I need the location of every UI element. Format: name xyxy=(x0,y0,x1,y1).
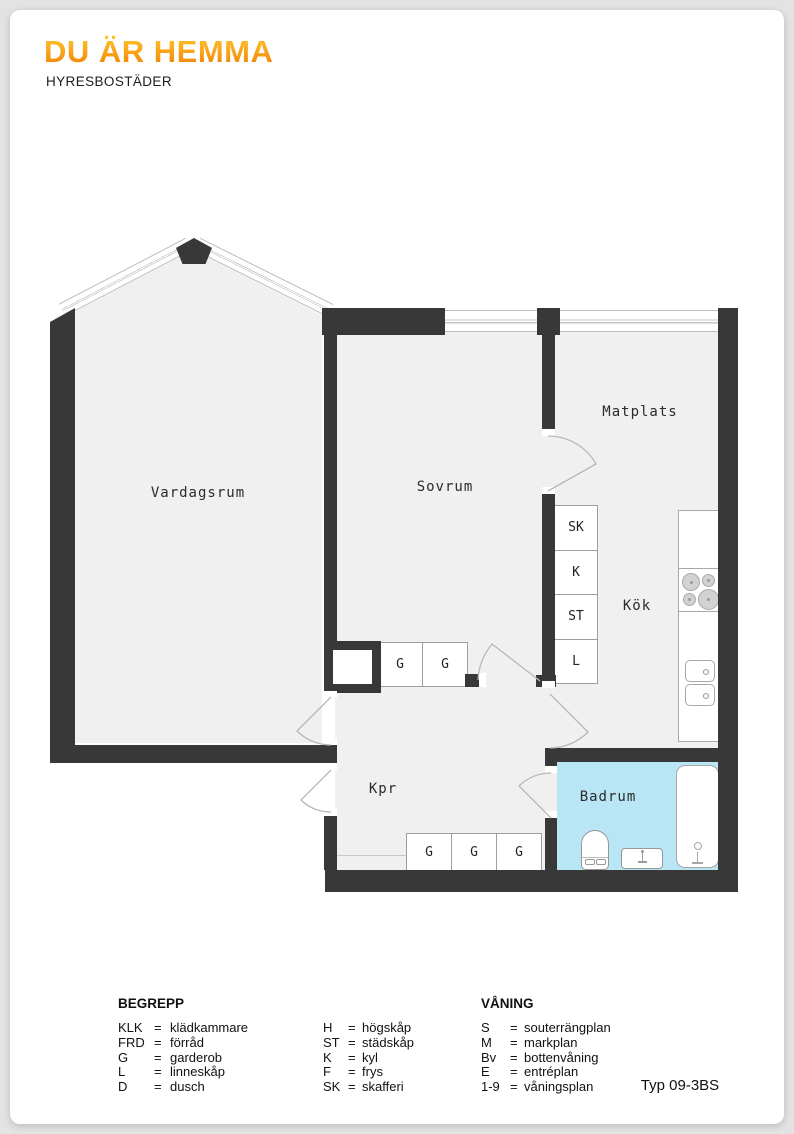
room-label-kpr: Kpr xyxy=(343,781,423,797)
shaft xyxy=(324,641,381,693)
legend-item: M=markplan xyxy=(481,1036,611,1051)
legend-item: Bv=bottenvåning xyxy=(481,1051,611,1066)
legend-vaning-title: VÅNING xyxy=(481,996,534,1011)
door-jamb xyxy=(479,673,486,687)
stove-icon xyxy=(678,568,719,612)
kitchen-counter xyxy=(678,510,719,742)
closet-kyl: K xyxy=(554,550,598,596)
room-label-sovrum: Sovrum xyxy=(385,479,505,495)
legend-begrepp-col2: H=högskåp ST=städskåp K=kyl F=frys SK=sk… xyxy=(323,1021,414,1095)
wall-badrum-left-lower xyxy=(545,818,557,870)
closet-garderob: G xyxy=(496,833,542,871)
closet-garderob: G xyxy=(377,642,423,687)
legend-item: ST=städskåp xyxy=(323,1036,414,1051)
closet-column-kitchen: SK K ST L xyxy=(555,505,598,683)
wall-vardagsrum-bottom xyxy=(50,745,337,763)
legend-item: D=dusch xyxy=(118,1080,248,1095)
window-sovrum-top xyxy=(445,310,537,332)
wall-sovrum-top xyxy=(322,308,445,335)
legend-item: E=entréplan xyxy=(481,1065,611,1080)
legend-item: S=souterrängplan xyxy=(481,1021,611,1036)
room-label-vardagsrum: Vardagsrum xyxy=(118,485,278,501)
wall-badrum-top xyxy=(551,748,720,762)
door-jamb xyxy=(542,487,555,494)
room-label-badrum: Badrum xyxy=(558,789,658,805)
door-jamb xyxy=(542,429,555,436)
legend-item: SK=skafferi xyxy=(323,1080,414,1095)
closet-skafferi: SK xyxy=(554,505,598,551)
legend-begrepp-col1: KLK=klädkammare FRD=förråd G=garderob L=… xyxy=(118,1021,248,1095)
wall-exterior-bottom xyxy=(325,870,738,892)
wall-top-pier xyxy=(537,308,560,335)
door-jamb xyxy=(324,809,337,816)
legend-item: K=kyl xyxy=(323,1051,414,1066)
closet-garderob: G xyxy=(451,833,497,871)
legend-item: H=högskåp xyxy=(323,1021,414,1036)
closet-row-sovrum: G G xyxy=(377,642,467,687)
closet-garderob: G xyxy=(422,642,468,687)
door-jamb xyxy=(324,738,337,745)
threshold-line xyxy=(337,855,406,856)
wall-sovrum-kitchen-main xyxy=(542,493,555,683)
closet-linneskap: L xyxy=(554,639,598,685)
wall-exterior-left xyxy=(50,308,75,763)
page: { "brand": { "title": "DU ÄR HEMMA", "su… xyxy=(0,0,794,1134)
closet-stadskap: ST xyxy=(554,594,598,640)
door-jamb xyxy=(545,811,557,818)
door-jamb xyxy=(542,681,555,688)
plan-type-label: Typ 09-3BS xyxy=(600,1077,760,1094)
toilet-icon xyxy=(581,830,609,870)
legend-begrepp-title: BEGREPP xyxy=(118,996,184,1011)
door-jamb xyxy=(545,766,557,773)
legend-item: L=linneskåp xyxy=(118,1065,248,1080)
wall-vardagsrum-sovrum xyxy=(324,308,337,641)
legend-item: FRD=förråd xyxy=(118,1036,248,1051)
kitchen-sink-icon xyxy=(685,684,715,706)
door-jamb xyxy=(324,691,337,698)
legend-item: KLK=klädkammare xyxy=(118,1021,248,1036)
legend-item: 1-9=våningsplan xyxy=(481,1080,611,1095)
floor-plan: SK K ST L G G G G G xyxy=(0,0,794,1134)
wall-stub-sovrum-door xyxy=(465,674,479,687)
window-matplats-top xyxy=(560,310,718,332)
closet-garderob: G xyxy=(406,833,452,871)
legend-item: F=frys xyxy=(323,1065,414,1080)
room-label-matplats: Matplats xyxy=(580,404,700,420)
wall-hall-left-lower xyxy=(324,816,337,870)
closet-row-hall: G G G xyxy=(406,833,541,871)
bathtub-icon xyxy=(676,765,719,868)
wall-sovrum-kitchen-upper xyxy=(542,335,555,433)
washbasin-icon xyxy=(621,848,663,869)
room-label-kok: Kök xyxy=(597,598,677,614)
door-jamb xyxy=(324,763,337,770)
wall-exterior-right xyxy=(718,308,738,892)
kitchen-sink-icon xyxy=(685,660,715,682)
legend-vaning-col: S=souterrängplan M=markplan Bv=bottenvån… xyxy=(481,1021,611,1095)
legend-item: G=garderob xyxy=(118,1051,248,1066)
